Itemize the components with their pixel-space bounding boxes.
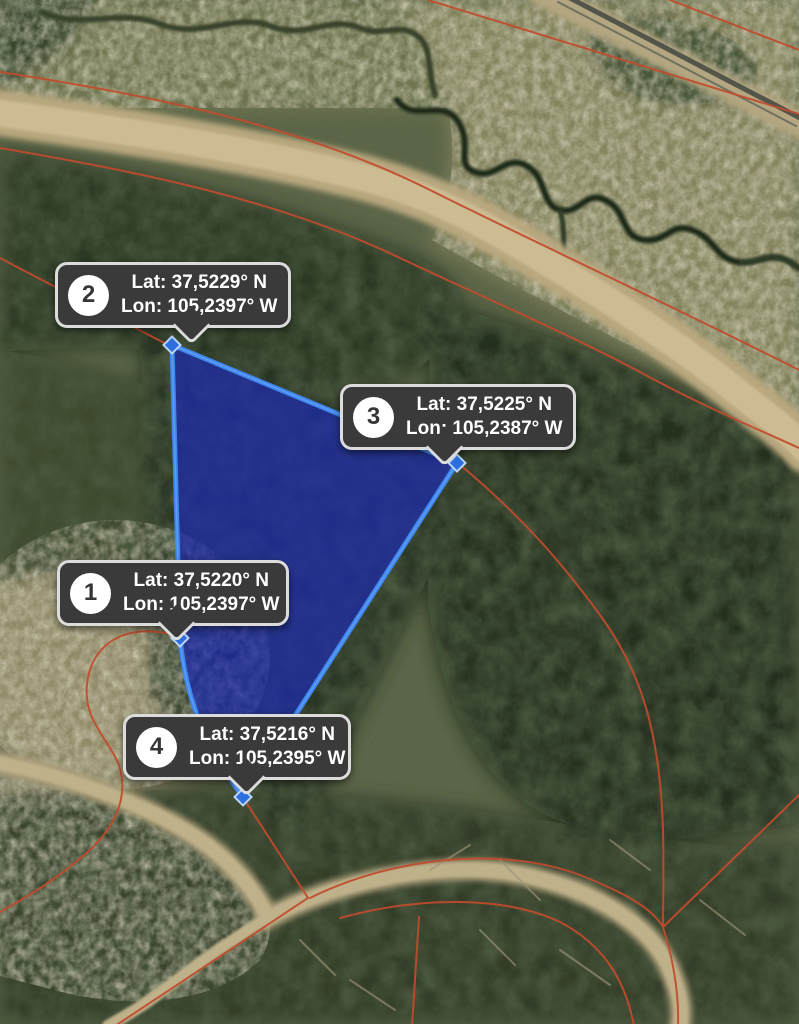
marker-lat: Lat: 37,5225° N [406, 393, 562, 417]
marker-number-badge: 2 [68, 275, 109, 316]
marker-tooltip-3[interactable]: 3 Lat: 37,5225° N Lon: 105,2387° W [340, 384, 576, 450]
marker-lat: Lat: 37,5220° N [123, 569, 279, 593]
marker-tooltip-4[interactable]: 4 Lat: 37,5216° N Lon: 105,2395° W [123, 714, 351, 780]
marker-lat: Lat: 37,5229° N [121, 271, 277, 295]
marker-lon: Lon: 105,2395° W [189, 747, 345, 771]
marker-tooltip-1[interactable]: 1 Lat: 37,5220° N Lon: 105,2397° W [57, 560, 289, 626]
marker-coordinates: Lat: 37,5220° N Lon: 105,2397° W [123, 569, 279, 618]
marker-lat: Lat: 37,5216° N [189, 723, 345, 747]
marker-coordinates: Lat: 37,5229° N Lon: 105,2397° W [121, 271, 277, 320]
marker-number-badge: 3 [353, 397, 394, 438]
marker-number-badge: 1 [70, 573, 111, 614]
marker-lon: Lon: 105,2387° W [406, 417, 562, 441]
marker-tooltip-2[interactable]: 2 Lat: 37,5229° N Lon: 105,2397° W [55, 262, 291, 328]
marker-number-badge: 4 [136, 727, 177, 768]
marker-coordinates: Lat: 37,5216° N Lon: 105,2395° W [189, 723, 345, 772]
map-viewport[interactable]: 2 Lat: 37,5229° N Lon: 105,2397° W 3 Lat… [0, 0, 799, 1024]
satellite-map[interactable] [0, 0, 799, 1024]
marker-coordinates: Lat: 37,5225° N Lon: 105,2387° W [406, 393, 562, 442]
marker-lon: Lon: 105,2397° W [123, 593, 279, 617]
